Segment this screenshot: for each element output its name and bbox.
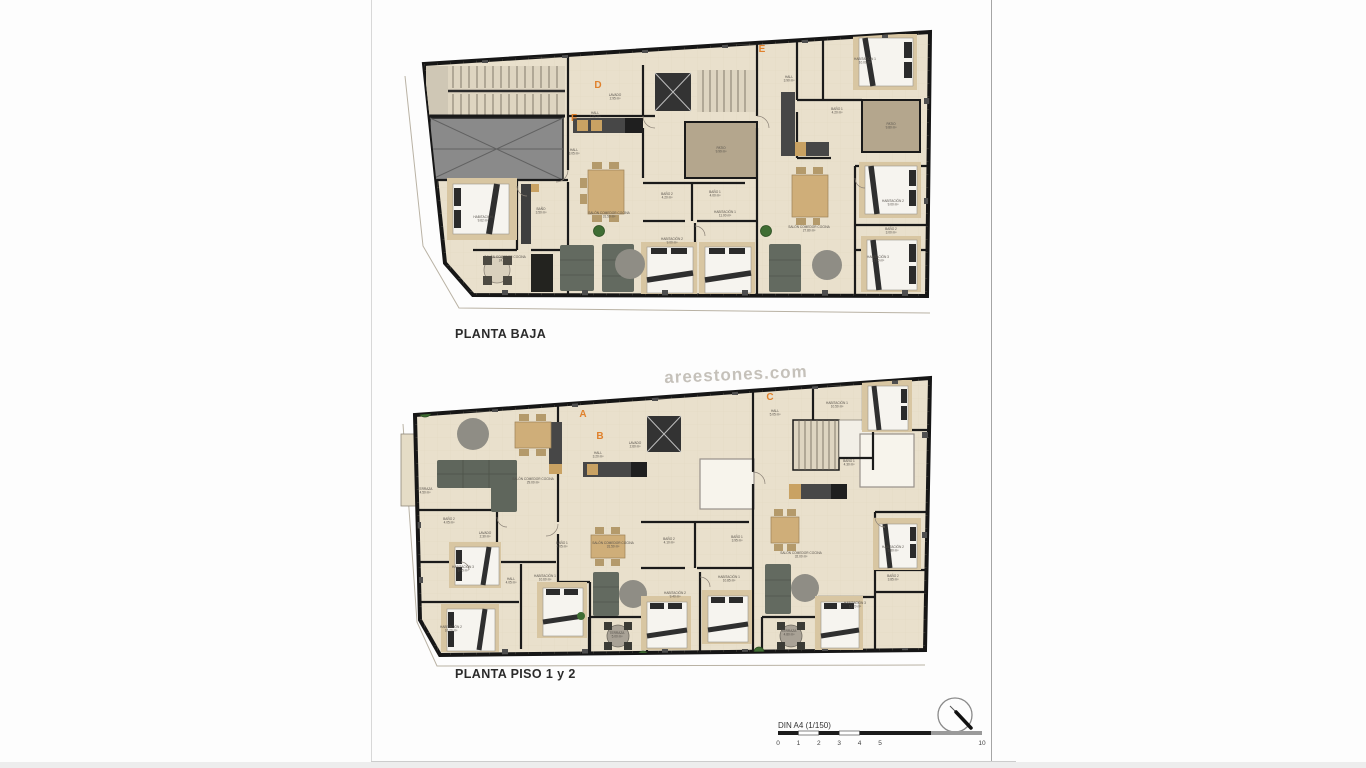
scale-and-compass: DIN A4 (1/150) 01234510 bbox=[770, 690, 995, 765]
scale-tick-5: 5 bbox=[878, 740, 882, 747]
dining-table bbox=[792, 167, 828, 225]
room-label: BAÑO 24.20 m² bbox=[661, 191, 673, 200]
bed bbox=[702, 590, 752, 644]
bed bbox=[859, 162, 921, 218]
lightwell-patio bbox=[860, 434, 914, 487]
elevator-shaft bbox=[647, 416, 681, 452]
room-label: LAVADO2.60 m² bbox=[629, 441, 642, 449]
room-label: PATIO9.99 m² bbox=[716, 146, 727, 154]
page-left-border bbox=[371, 0, 372, 768]
roof-hatch-block bbox=[430, 118, 563, 180]
scale-tick-10: 10 bbox=[978, 740, 986, 747]
sofa bbox=[593, 572, 619, 616]
stairwell bbox=[426, 66, 565, 116]
bed bbox=[862, 380, 912, 432]
elevator-shaft bbox=[655, 73, 691, 111]
rug bbox=[812, 250, 842, 280]
rug bbox=[457, 418, 489, 450]
unit-letter-A: A bbox=[579, 409, 586, 420]
core-stairs bbox=[697, 70, 755, 112]
page-right-border bbox=[991, 0, 992, 768]
floor-plan-planta-baja: DFE HALL3.05 m²BAÑO3.50 m²HABITACIÓN9.62… bbox=[385, 18, 945, 318]
plant bbox=[418, 403, 432, 417]
bed bbox=[641, 596, 691, 650]
room-label: LAVADO2.95 m² bbox=[609, 93, 622, 101]
plan1-title: PLANTA BAJA bbox=[455, 327, 546, 341]
north-compass-icon bbox=[938, 698, 972, 732]
bed bbox=[641, 242, 697, 294]
room-label: BAÑO 14.00 m² bbox=[709, 189, 721, 198]
room-label: BAÑO 14.20 m² bbox=[831, 106, 843, 115]
room-label: HALL4.05 m² bbox=[506, 577, 517, 585]
bed bbox=[447, 178, 517, 240]
scale-tick-1: 1 bbox=[797, 740, 801, 747]
plant bbox=[638, 651, 648, 661]
unit-letter-C: C bbox=[766, 392, 773, 403]
plan2-title: PLANTA PISO 1 y 2 bbox=[455, 667, 576, 681]
room-label: HALL7.05 m² bbox=[590, 111, 601, 119]
lightwell-patio bbox=[700, 459, 754, 509]
rug bbox=[615, 249, 645, 279]
plant bbox=[761, 226, 772, 237]
plant bbox=[577, 612, 585, 620]
sofa bbox=[765, 564, 791, 614]
plant bbox=[594, 226, 605, 237]
unit-letter-E: E bbox=[759, 44, 766, 55]
sofa bbox=[769, 244, 801, 292]
room-label: BAÑO 24.05 m² bbox=[443, 516, 455, 525]
room-label: BAÑO 14.30 m² bbox=[843, 458, 855, 467]
scale-tick-0: 0 bbox=[776, 740, 780, 747]
bed bbox=[699, 242, 755, 294]
room-label: LAVADO2.30 m² bbox=[479, 531, 492, 539]
scale-bar bbox=[778, 731, 982, 735]
room-label: BAÑO 13.95 m² bbox=[731, 534, 743, 543]
page-bottom-strip bbox=[0, 762, 1366, 768]
scale-tick-4: 4 bbox=[858, 740, 862, 747]
unit-letter-F: F bbox=[571, 113, 577, 124]
unit-letter-D: D bbox=[594, 80, 601, 91]
scale-tick-3: 3 bbox=[837, 740, 841, 747]
room-label: HALL5.05 m² bbox=[770, 409, 781, 417]
floor-plan-planta-piso-1-2: ABC TERRAZA4.50 m²SALÓN COMEDOR COCINA29… bbox=[385, 372, 945, 670]
scale-format-label: DIN A4 (1/150) bbox=[778, 721, 831, 730]
room-label: HALL3.90 m² bbox=[784, 75, 795, 83]
room-label: BAÑO 23.85 m² bbox=[887, 573, 899, 582]
document-page: DFE HALL3.05 m²BAÑO3.50 m²HABITACIÓN9.62… bbox=[0, 0, 1366, 768]
room-label: BAÑO 14.05 m² bbox=[556, 540, 568, 549]
room-label: HALL3.20 m² bbox=[593, 451, 604, 459]
unit-letter-B: B bbox=[596, 431, 603, 442]
scale-tick-2: 2 bbox=[817, 740, 821, 747]
room-label: BAÑO3.50 m² bbox=[536, 206, 547, 215]
room-label: BAÑO 23.00 m² bbox=[885, 226, 897, 235]
rug bbox=[791, 574, 819, 602]
bed bbox=[861, 236, 921, 292]
scale-tick-numbers: 01234510 bbox=[776, 740, 986, 747]
room-label: BAÑO 24.10 m² bbox=[663, 536, 675, 545]
room-label: PATIO9.80 m² bbox=[886, 122, 897, 130]
room-label: HALL3.05 m² bbox=[569, 148, 580, 156]
bed bbox=[537, 582, 587, 638]
